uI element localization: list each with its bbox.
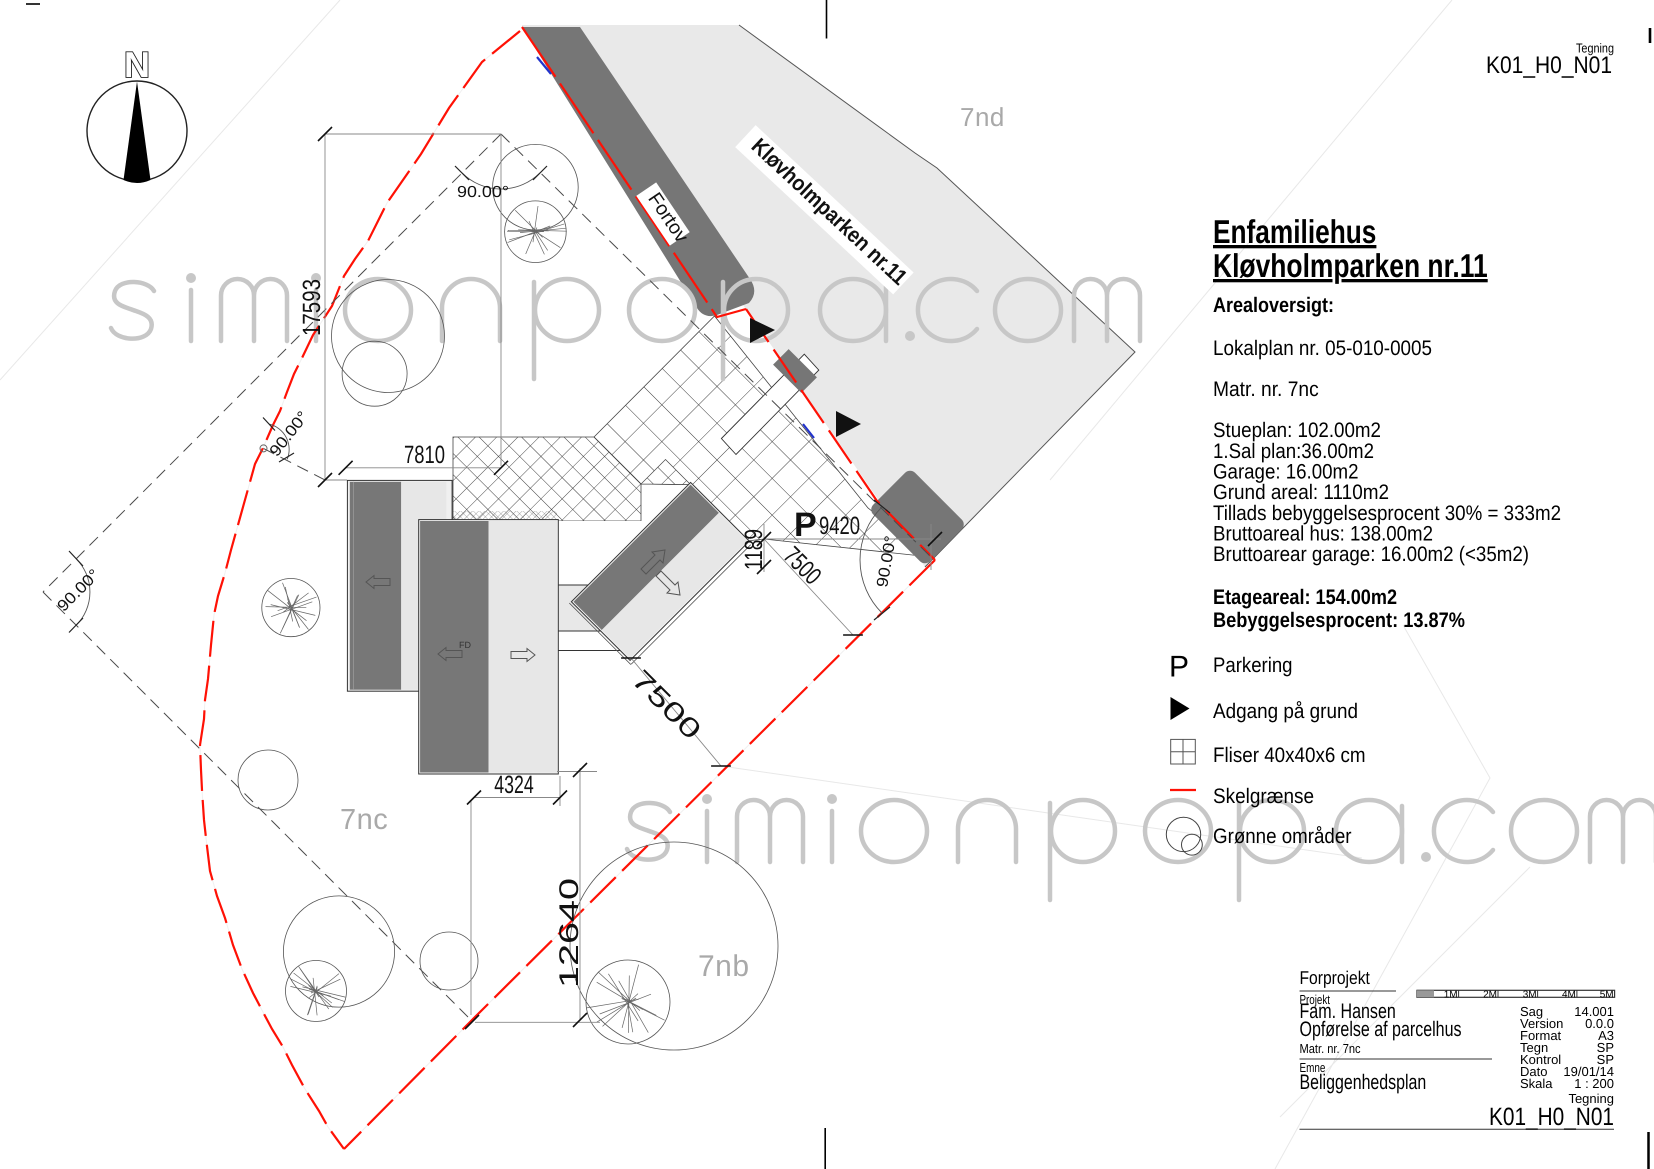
svg-text:7nd: 7nd: [960, 102, 1005, 132]
svg-text:7500: 7500: [778, 541, 827, 590]
svg-text:7nc: 7nc: [340, 804, 388, 836]
svg-text:Enfamiliehus: Enfamiliehus: [1213, 213, 1376, 250]
svg-text:Grønne områder: Grønne områder: [1213, 825, 1352, 848]
svg-text:5M: 5M: [1600, 989, 1614, 1000]
svg-text:12640: 12640: [554, 878, 584, 988]
svg-text:N: N: [124, 44, 150, 85]
svg-text:P: P: [794, 506, 817, 544]
svg-text:Etageareal: 154.00m2: Etageareal: 154.00m2: [1213, 586, 1397, 609]
svg-text:K01_H0_N01: K01_H0_N01: [1489, 1103, 1614, 1131]
svg-text:Matr. nr. 7nc: Matr. nr. 7nc: [1213, 378, 1319, 401]
svg-text:Opførelse af parcelhus: Opførelse af parcelhus: [1300, 1018, 1462, 1041]
svg-text:Parkering: Parkering: [1213, 654, 1293, 677]
svg-text:Skala: Skala: [1520, 1076, 1553, 1091]
svg-text:K01_H0_N01: K01_H0_N01: [1486, 52, 1612, 79]
svg-text:2M: 2M: [1483, 989, 1497, 1000]
svg-text:Fliser 40x40x6 cm: Fliser 40x40x6 cm: [1213, 744, 1366, 767]
svg-text:90.00°: 90.00°: [457, 184, 509, 201]
svg-text:4M: 4M: [1562, 989, 1576, 1000]
svg-text:1189: 1189: [740, 529, 768, 570]
svg-text:P: P: [1169, 651, 1189, 684]
svg-text:Forprojekt: Forprojekt: [1300, 967, 1370, 988]
svg-text:3M: 3M: [1523, 989, 1537, 1000]
svg-text:1M: 1M: [1444, 989, 1458, 1000]
svg-text:Bruttoarear garage: 16.00m2 (<: Bruttoarear garage: 16.00m2 (<35m2): [1213, 543, 1529, 566]
svg-text:Stueplan: 102.00m2: Stueplan: 102.00m2: [1213, 419, 1381, 442]
svg-text:7nb: 7nb: [698, 950, 750, 983]
svg-text:Bebyggelsesprocent: 13.87%: Bebyggelsesprocent: 13.87%: [1213, 609, 1465, 632]
svg-text:FD: FD: [459, 640, 471, 650]
svg-text:1 : 200: 1 : 200: [1574, 1076, 1614, 1091]
svg-text:Kløvholmparken nr.11: Kløvholmparken nr.11: [1213, 247, 1488, 284]
svg-text:Matr. nr. 7nc: Matr. nr. 7nc: [1300, 1041, 1362, 1056]
svg-text:Adgang på grund: Adgang på grund: [1213, 700, 1358, 723]
svg-text:90.00°: 90.00°: [54, 566, 103, 615]
svg-text:9420: 9420: [819, 512, 860, 540]
svg-text:Arealoversigt:: Arealoversigt:: [1213, 294, 1334, 317]
svg-text:7810: 7810: [404, 441, 445, 469]
svg-text:4324: 4324: [494, 771, 534, 799]
svg-text:Grund areal: 1110m2: Grund areal: 1110m2: [1213, 481, 1389, 504]
svg-text:Beliggenhedsplan: Beliggenhedsplan: [1300, 1071, 1427, 1094]
svg-text:Lokalplan nr. 05-010-0005: Lokalplan nr. 05-010-0005: [1213, 337, 1432, 360]
svg-text:17593: 17593: [298, 279, 326, 336]
svg-text:7500: 7500: [626, 664, 707, 745]
svg-text:Skelgrænse: Skelgrænse: [1213, 785, 1314, 808]
